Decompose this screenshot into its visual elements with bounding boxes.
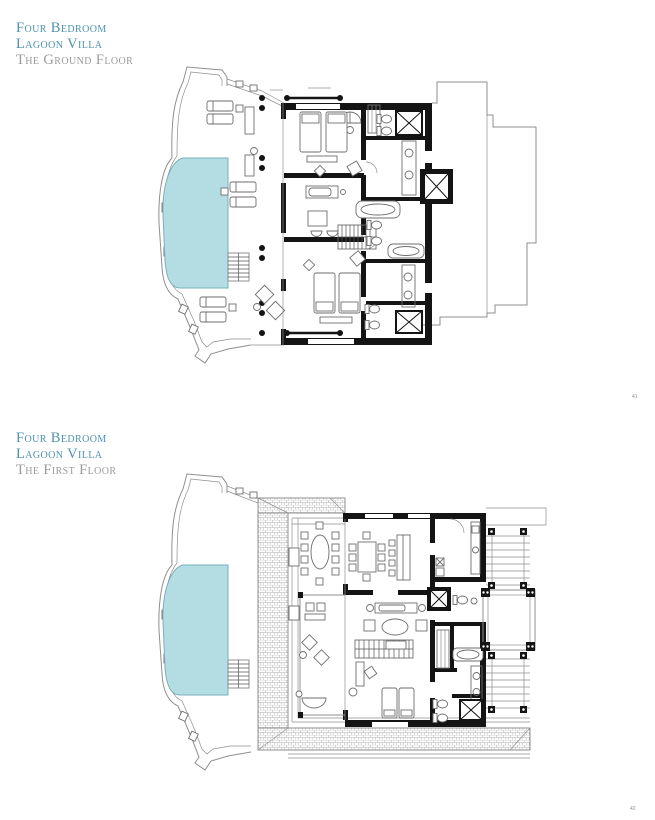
floor-plan-first — [150, 470, 610, 820]
elevator-shaft — [427, 587, 451, 611]
kitchen — [436, 522, 480, 576]
pool-stairs — [228, 253, 249, 281]
page-number-41: 41 — [632, 394, 638, 400]
dining-room — [349, 532, 410, 581]
outdoor-dining — [301, 522, 339, 585]
floor-plan-ground — [150, 55, 610, 415]
title-line-1: Four Bedroom — [16, 20, 216, 36]
elevator-shaft — [420, 169, 453, 204]
bridge-lower — [486, 652, 530, 713]
title-line-2: Lagoon Villa — [16, 36, 216, 52]
pool-deck — [159, 474, 258, 770]
title-line-2: Lagoon Villa — [16, 446, 216, 462]
living-room — [364, 603, 427, 649]
water-platform — [481, 588, 535, 651]
living-room — [306, 186, 346, 237]
lounge-left-wing — [296, 603, 329, 708]
bedroom-bottom — [303, 251, 365, 323]
bridge-upper — [486, 528, 530, 589]
bedroom-lower — [349, 662, 414, 718]
swimming-pool — [163, 158, 228, 288]
page-number-42: 42 — [630, 806, 636, 812]
title-line-1: Four Bedroom — [16, 430, 216, 446]
bathroom-lower — [433, 596, 483, 723]
